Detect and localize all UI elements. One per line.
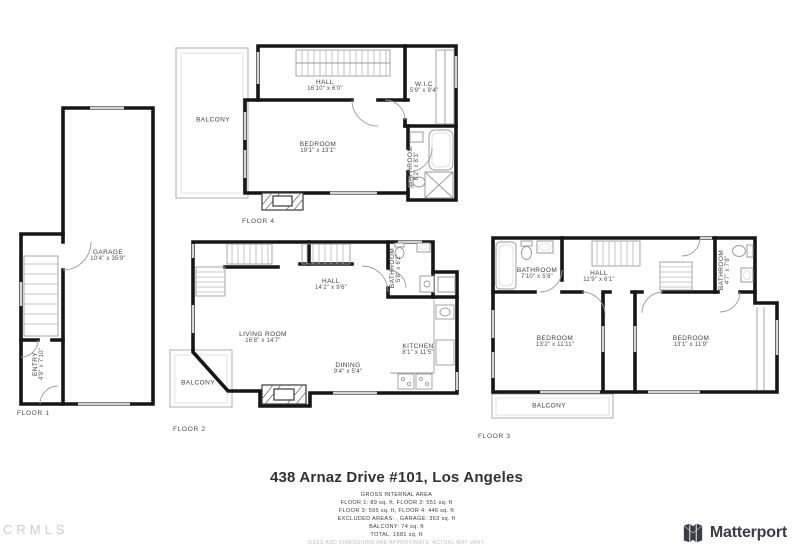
room-name: ENTRY: [32, 348, 39, 380]
room-name: BATHROOM: [718, 250, 725, 290]
floor-3-tag: FLOOR 3: [478, 433, 511, 440]
door-arc: [385, 100, 405, 120]
floorplan-page: GARAGE 10'4" x 35'9" ENTRY 4'9" x 7'10" …: [0, 0, 793, 560]
room-name: BEDROOM: [300, 141, 336, 148]
property-title: 438 Arnaz Drive #101, Los Angeles: [0, 469, 793, 486]
room-name: BEDROOM: [673, 335, 709, 342]
room-dims: 14'2" x 9'6": [315, 285, 347, 292]
room-label-living-room: LIVING ROOM 16'8" x 14'7": [239, 331, 287, 345]
room-dims: 10'4" x 35'9": [90, 256, 126, 263]
room-label-kitchen: KITCHEN 8'1" x 11'5": [402, 343, 434, 357]
matterport-icon: [682, 522, 704, 544]
room-dims: 13'2" x 11'11": [536, 342, 574, 349]
floor-1-tag: FLOOR 1: [17, 410, 50, 417]
room-label-garage: GARAGE 10'4" x 35'9": [90, 249, 126, 263]
room-dims: 8'2" x 8'3": [414, 146, 421, 186]
room-label-bathroom2-f3: BATHROOM 4'7" x 7'8": [718, 250, 732, 290]
room-name: BEDROOM: [536, 335, 574, 342]
sink-icon: [741, 268, 753, 282]
matterport-logo: Matterport: [682, 522, 787, 544]
room-dims: 4'7" x 7'8": [725, 250, 732, 290]
sink-icon: [436, 305, 454, 319]
room-label-bathroom-f2: BATHROOM 5'8" x 6'2": [389, 248, 403, 288]
sink-icon: [438, 277, 455, 292]
disclaimer-text: SIZES AND DIMENSIONS ARE APPROXIMATE, AC…: [0, 540, 793, 546]
door-arc: [682, 238, 700, 256]
shower-icon: [420, 276, 434, 292]
room-label-bedroom2: BEDROOM 13'1" x 11'9": [673, 335, 709, 349]
crmls-watermark: CRMLS: [3, 522, 69, 537]
room-label-bedroom1: BEDROOM 13'2" x 11'11": [536, 335, 574, 349]
room-dims: 19'1" x 13'1": [300, 148, 336, 155]
bathtub-icon: [429, 130, 453, 170]
room-name: BALCONY: [196, 117, 230, 124]
area-line: FLOOR 1: 89 sq. ft, FLOOR 2: 551 sq. ft: [0, 499, 793, 507]
room-name: DINING: [334, 362, 362, 369]
room-name: HALL: [315, 278, 347, 285]
fireplace-icon: [262, 193, 303, 210]
room-label-wic: W.I.C 5'9" x 9'4": [410, 81, 438, 95]
room-name: BATHROOM: [407, 146, 414, 186]
room-label-hall-f4: HALL 16'10" x 6'0": [307, 79, 343, 93]
stove-icon: [398, 374, 432, 389]
room-name: BATHROOM: [389, 248, 396, 288]
door-arc: [40, 386, 58, 404]
room-dims: 7'10" x 5'8": [517, 274, 557, 281]
area-line: TOTAL: 1681 sq. ft: [0, 531, 793, 539]
toilet-icon: [521, 241, 532, 260]
room-label-dining: DINING 9'4" x 5'4": [334, 362, 362, 376]
room-name: BALCONY: [181, 380, 215, 387]
door-arc: [352, 100, 378, 126]
fireplace-icon: [262, 385, 306, 404]
kitchen-counter: [390, 300, 434, 373]
stairs-icon: [296, 50, 390, 76]
stairs-icon: [196, 244, 272, 296]
floor-2-tag: FLOOR 2: [173, 426, 206, 433]
area-line: EXCLUDED AREAS: , GARAGE: 363 sq. ft: [0, 515, 793, 523]
room-label-bathroom-f4: BATHROOM 8'2" x 8'3": [407, 146, 421, 186]
room-name: BATHROOM: [517, 267, 557, 274]
sink-icon: [410, 132, 423, 142]
room-label-bedroom-f4: BEDROOM 19'1" x 13'1": [300, 141, 336, 155]
door-arc: [63, 242, 91, 270]
room-dims: 5'8" x 6'2": [396, 248, 403, 288]
room-name: GARAGE: [90, 249, 126, 256]
door-arc: [720, 292, 740, 312]
area-line: FLOOR 3: 595 sq. ft, FLOOR 4: 446 sq. ft: [0, 507, 793, 515]
area-summary: FLOOR 1: 89 sq. ft, FLOOR 2: 551 sq. ft …: [0, 499, 793, 539]
room-dims: 4'9" x 7'10": [39, 348, 46, 380]
bathtub-icon: [496, 242, 516, 289]
room-name: KITCHEN: [402, 343, 434, 350]
room-name: BALCONY: [532, 403, 566, 410]
room-name: HALL: [583, 270, 615, 277]
room-label-balcony-f4: BALCONY: [196, 117, 230, 124]
room-label-balcony-f3: BALCONY: [532, 403, 566, 410]
shower-icon: [425, 172, 453, 198]
gross-area-heading: GROSS INTERNAL AREA: [0, 491, 793, 499]
room-dims: 16'8" x 14'7": [239, 338, 287, 345]
room-dims: 5'9" x 9'4": [410, 88, 438, 95]
room-label-balcony-f2: BALCONY: [181, 380, 215, 387]
toilet-icon: [733, 245, 754, 257]
room-dims: 11'9" x 6'1": [583, 277, 615, 284]
floor-4-tag: FLOOR 4: [242, 218, 275, 225]
stairs-icon: [24, 256, 58, 336]
room-label-entry: ENTRY 4'9" x 7'10": [32, 348, 46, 380]
floor-3-plan: [492, 238, 777, 418]
area-line: BALCONY: 74 sq. ft: [0, 523, 793, 531]
sink-icon: [417, 243, 430, 252]
room-dims: 8'1" x 11'5": [402, 350, 434, 357]
matterport-wordmark: Matterport: [710, 524, 787, 542]
room-label-hall-f2: HALL 14'2" x 9'6": [315, 278, 347, 292]
door-arc: [642, 292, 663, 313]
closet-icon: [436, 50, 454, 124]
room-dims: 13'1" x 11'9": [673, 342, 709, 349]
room-name: LIVING ROOM: [239, 331, 287, 338]
fridge-icon: [436, 340, 454, 365]
room-name: HALL: [307, 79, 343, 86]
sink-icon: [537, 241, 553, 253]
room-label-bathroom1-f3: BATHROOM 7'10" x 5'8": [517, 267, 557, 281]
door-arc: [362, 266, 388, 292]
room-label-hall-f3: HALL 11'9" x 6'1": [583, 270, 615, 284]
room-dims: 9'4" x 5'4": [334, 369, 362, 376]
room-name: W.I.C: [410, 81, 438, 88]
room-dims: 16'10" x 6'0": [307, 86, 343, 93]
